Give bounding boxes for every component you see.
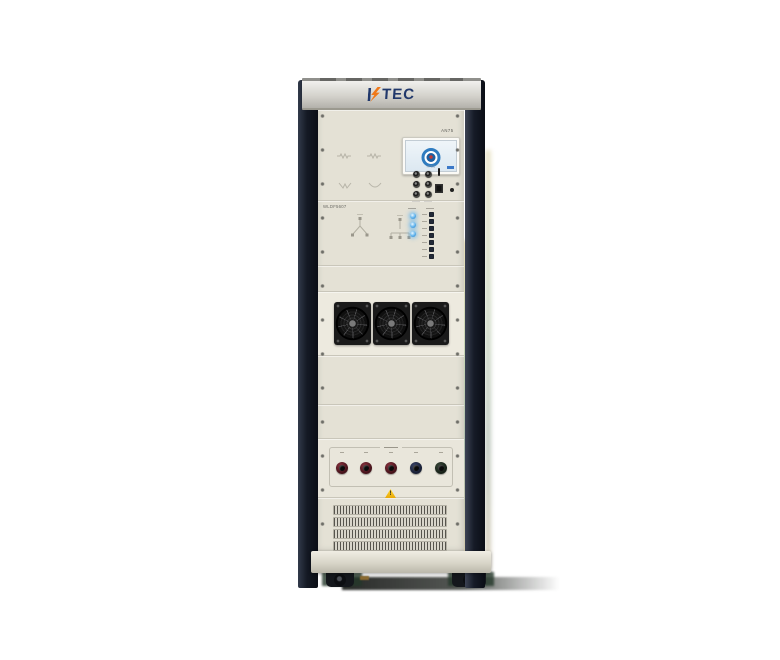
panel-display-unit: AN75 HTEC	[316, 110, 464, 204]
banana-terminal-navy	[410, 462, 422, 474]
mini-connector	[425, 171, 432, 178]
cabinet-header: TEC	[302, 78, 481, 110]
grille-row	[333, 541, 447, 551]
schematic-symbol-icon	[368, 182, 382, 189]
schematic-symbol-icon	[338, 182, 352, 189]
panel-terminals	[316, 438, 464, 497]
blue-led	[410, 222, 416, 228]
status-led	[429, 233, 434, 238]
rack-pillar-right	[465, 80, 485, 588]
panel-fans	[316, 291, 464, 355]
panel-blank	[316, 404, 464, 438]
vent-grille	[333, 505, 447, 553]
rack-pillar-left	[298, 80, 318, 588]
brand-logo: TEC	[367, 87, 415, 102]
equipment-photo: TEC AN75 HTEC	[0, 0, 780, 660]
blue-led	[410, 213, 416, 219]
mini-connector	[425, 191, 432, 198]
banana-terminal-red	[336, 462, 348, 474]
mini-connector	[413, 181, 420, 188]
grille-row	[333, 517, 447, 527]
panel-wiring-unit: WLDF5607	[316, 200, 464, 265]
schematic-symbol-icon	[366, 152, 382, 160]
status-led	[429, 240, 434, 245]
screen-corner-mark	[447, 166, 454, 169]
panel-blank	[316, 355, 464, 404]
panel-vent-grille	[316, 497, 464, 553]
status-led	[429, 254, 434, 259]
cooling-fan	[412, 302, 449, 345]
background-blur-strip	[485, 150, 491, 570]
grille-row	[333, 529, 447, 539]
star-wiring-diagram	[348, 214, 372, 240]
banana-terminal-green	[435, 462, 447, 474]
status-led	[429, 219, 434, 224]
brand-text: TEC	[381, 87, 415, 102]
led-column-header-mark	[408, 208, 416, 209]
warning-symbol: !	[390, 490, 392, 498]
led-column-header-mark	[426, 208, 434, 209]
status-led	[429, 226, 434, 231]
model-label: WLDF5607	[323, 204, 347, 209]
display-panel-tag: AN75	[442, 128, 454, 133]
mini-connector	[425, 181, 432, 188]
mini-connector	[413, 171, 420, 178]
floor-spot	[360, 576, 369, 580]
grille-row	[333, 505, 447, 515]
screen-caption: HTEC	[411, 165, 451, 169]
screw-rail-left	[319, 104, 326, 552]
square-port	[435, 184, 443, 193]
base-plinth	[311, 551, 491, 573]
terminal-group-label-mark	[380, 447, 402, 449]
star-wiring-diagram	[386, 215, 414, 241]
touchscreen: HTEC	[405, 140, 457, 172]
banana-terminal-red	[360, 462, 372, 474]
status-led	[429, 212, 434, 217]
cooling-fan	[373, 302, 410, 345]
cooling-fan	[334, 302, 371, 345]
touchscreen-bezel: HTEC	[402, 137, 460, 175]
screw-rail-right	[454, 104, 461, 552]
mini-connector	[413, 191, 420, 198]
banana-terminal-red	[385, 462, 397, 474]
panel-blank	[316, 265, 464, 291]
blue-led	[410, 231, 416, 237]
key-slot	[438, 168, 440, 176]
lightning-h-icon	[367, 87, 381, 102]
schematic-symbol-icon	[336, 152, 352, 160]
status-led	[429, 247, 434, 252]
cabinet-front-face: AN75 HTEC WLDF5607	[316, 104, 464, 552]
